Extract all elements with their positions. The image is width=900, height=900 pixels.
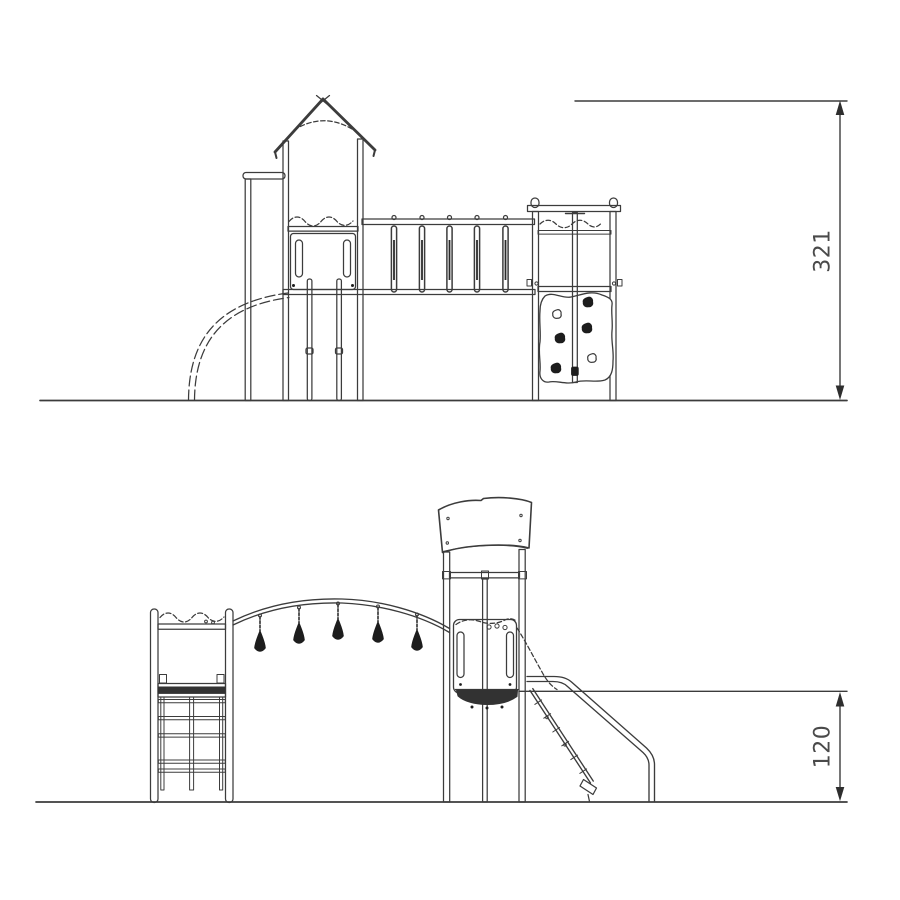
slide-chute	[530, 689, 597, 802]
platform-bracket	[160, 675, 167, 684]
panel-handle-slot	[457, 632, 464, 678]
platform-wave-line	[160, 613, 224, 622]
ladder-rung	[158, 717, 225, 720]
curved-climbing-pole	[189, 293, 290, 400]
tower-post-left	[533, 212, 539, 401]
ladder-rail	[161, 697, 164, 790]
platform-bracket	[217, 675, 224, 684]
slide-pole	[337, 279, 342, 401]
playground-elevation-drawing: 321	[0, 0, 900, 900]
loop-rung	[474, 216, 479, 293]
climbing-hold	[582, 323, 592, 333]
panel-handle-slot	[507, 632, 514, 678]
arched-grip-bridge	[233, 599, 450, 651]
ladder-center-rail	[190, 697, 194, 790]
slide-entry-curve	[517, 628, 557, 690]
hanging-grip	[333, 602, 344, 639]
guard-panel	[291, 234, 356, 290]
tower-post-left	[283, 141, 289, 401]
bridge-top-rail	[362, 219, 535, 225]
arrow-up-icon	[836, 101, 845, 116]
dimension-value-upper: 321	[811, 229, 836, 273]
tower-post-right	[226, 609, 234, 803]
roof-left-edge	[275, 99, 323, 152]
loop-rung	[447, 216, 452, 293]
panel-handle-slot	[344, 240, 351, 277]
slide	[527, 677, 655, 802]
loop-rung	[503, 216, 508, 293]
tower-top-bar	[158, 624, 226, 629]
curved-roof-panel	[439, 498, 532, 553]
hanging-grip	[373, 605, 384, 642]
height-dimension-lower: 120	[519, 691, 847, 801]
ladder-rung	[158, 734, 225, 737]
arrow-up-icon	[836, 692, 845, 707]
climbing-hold	[583, 297, 593, 307]
hanging-grip	[255, 614, 266, 651]
loop-ladder-bridge	[283, 216, 535, 295]
lower-elevation-view: 120	[36, 498, 847, 803]
climbing-hold	[551, 363, 561, 373]
tower-post-right	[358, 139, 364, 401]
platform-wave-line	[540, 220, 601, 228]
peaked-roof-tower	[275, 96, 375, 401]
ladder-rail	[220, 697, 223, 790]
tower-post-left	[444, 552, 450, 802]
bridge-bottom-rail	[283, 290, 535, 295]
high-bar	[243, 173, 285, 401]
slide-foot	[580, 780, 597, 795]
arrow-down-icon	[836, 787, 845, 801]
pole-foot	[572, 367, 579, 376]
slide-pole	[307, 279, 312, 401]
loop-rung	[391, 216, 396, 293]
tower-top-bar	[528, 206, 621, 212]
climbing-hold	[588, 354, 597, 363]
platform-wave-line	[289, 217, 353, 226]
ladder-tower	[151, 609, 234, 803]
canopy-roof-tower	[439, 498, 558, 802]
climbing-hold	[553, 310, 562, 319]
climbing-wall-tower	[527, 198, 622, 401]
arrow-down-icon	[836, 386, 845, 401]
drawing-page: 321	[0, 0, 900, 900]
platform-deck	[538, 231, 611, 235]
ladder-rung	[158, 769, 225, 772]
ladder-rung	[158, 700, 225, 703]
platform-deck	[288, 227, 358, 232]
tower-post-right	[519, 550, 525, 803]
loop-rung	[419, 216, 424, 293]
tower-post-left	[151, 609, 159, 803]
ladder-rung	[158, 760, 225, 763]
platform-edge	[159, 687, 225, 693]
climbing-hold	[555, 333, 565, 343]
dimension-value-lower: 120	[811, 725, 836, 769]
hanging-grip	[294, 606, 305, 643]
mid-rail	[538, 287, 611, 292]
upper-elevation-view: 321	[40, 96, 847, 401]
platform-seat	[457, 690, 518, 705]
cross-bar	[450, 573, 520, 578]
panel-handle-slot	[296, 240, 303, 277]
roof-right-edge	[323, 99, 375, 150]
